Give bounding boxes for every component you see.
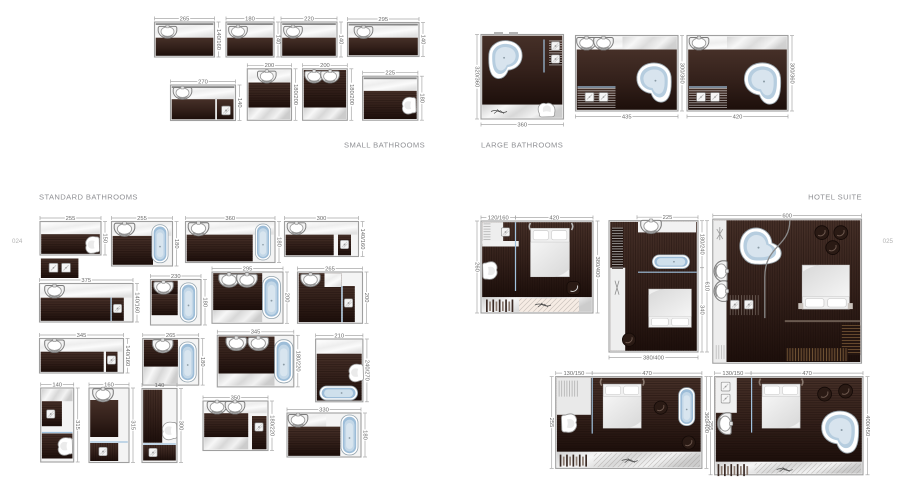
svg-text:315: 315 [74, 420, 80, 430]
svg-text:300/360: 300/360 [678, 63, 684, 84]
svg-text:180/240: 180/240 [698, 234, 704, 255]
svg-text:255: 255 [707, 421, 713, 431]
svg-text:300: 300 [177, 421, 183, 431]
svg-text:400/450: 400/450 [864, 415, 870, 436]
svg-text:140: 140 [337, 35, 343, 45]
svg-text:024: 024 [12, 238, 23, 245]
svg-text:180/200: 180/200 [292, 84, 298, 105]
svg-text:180: 180 [361, 430, 367, 440]
svg-text:180: 180 [199, 357, 205, 367]
svg-text:255: 255 [548, 418, 554, 428]
svg-text:025: 025 [883, 238, 894, 245]
svg-text:140/160: 140/160 [359, 229, 365, 250]
svg-text:320/360: 320/360 [473, 66, 479, 87]
svg-text:200: 200 [283, 293, 289, 303]
svg-text:260: 260 [473, 262, 479, 272]
svg-text:610: 610 [703, 282, 709, 292]
svg-text:140/160: 140/160 [124, 345, 130, 366]
svg-text:140/160: 140/160 [133, 292, 139, 313]
svg-text:420: 420 [733, 114, 743, 120]
svg-text:LARGE BATHROOMS: LARGE BATHROOMS [481, 141, 563, 150]
svg-text:200: 200 [363, 293, 369, 303]
svg-text:SMALL BATHROOMS: SMALL BATHROOMS [344, 141, 425, 150]
svg-text:180: 180 [173, 239, 179, 249]
svg-text:180: 180 [418, 93, 424, 103]
svg-text:180: 180 [275, 237, 281, 247]
svg-text:140: 140 [236, 98, 242, 108]
svg-text:150: 150 [101, 233, 107, 243]
svg-text:180: 180 [201, 297, 207, 307]
svg-text:340: 340 [698, 305, 704, 315]
svg-text:240/270: 240/270 [363, 360, 369, 381]
svg-text:300/360: 300/360 [788, 63, 794, 84]
svg-text:180/220: 180/220 [294, 351, 300, 372]
svg-text:435: 435 [622, 114, 632, 120]
svg-text:380/400: 380/400 [594, 257, 600, 278]
svg-text:HOTEL SUITE: HOTEL SUITE [808, 193, 862, 202]
svg-text:380/400: 380/400 [643, 355, 664, 361]
svg-text:140/160: 140/160 [215, 29, 221, 50]
svg-text:315: 315 [129, 420, 135, 430]
svg-text:180/200: 180/200 [348, 84, 354, 105]
svg-text:140: 140 [419, 35, 425, 45]
svg-text:STANDARD BATHROOMS: STANDARD BATHROOMS [39, 193, 138, 202]
svg-text:360: 360 [517, 122, 527, 128]
svg-text:180/220: 180/220 [268, 415, 274, 436]
svg-text:140: 140 [274, 35, 280, 45]
